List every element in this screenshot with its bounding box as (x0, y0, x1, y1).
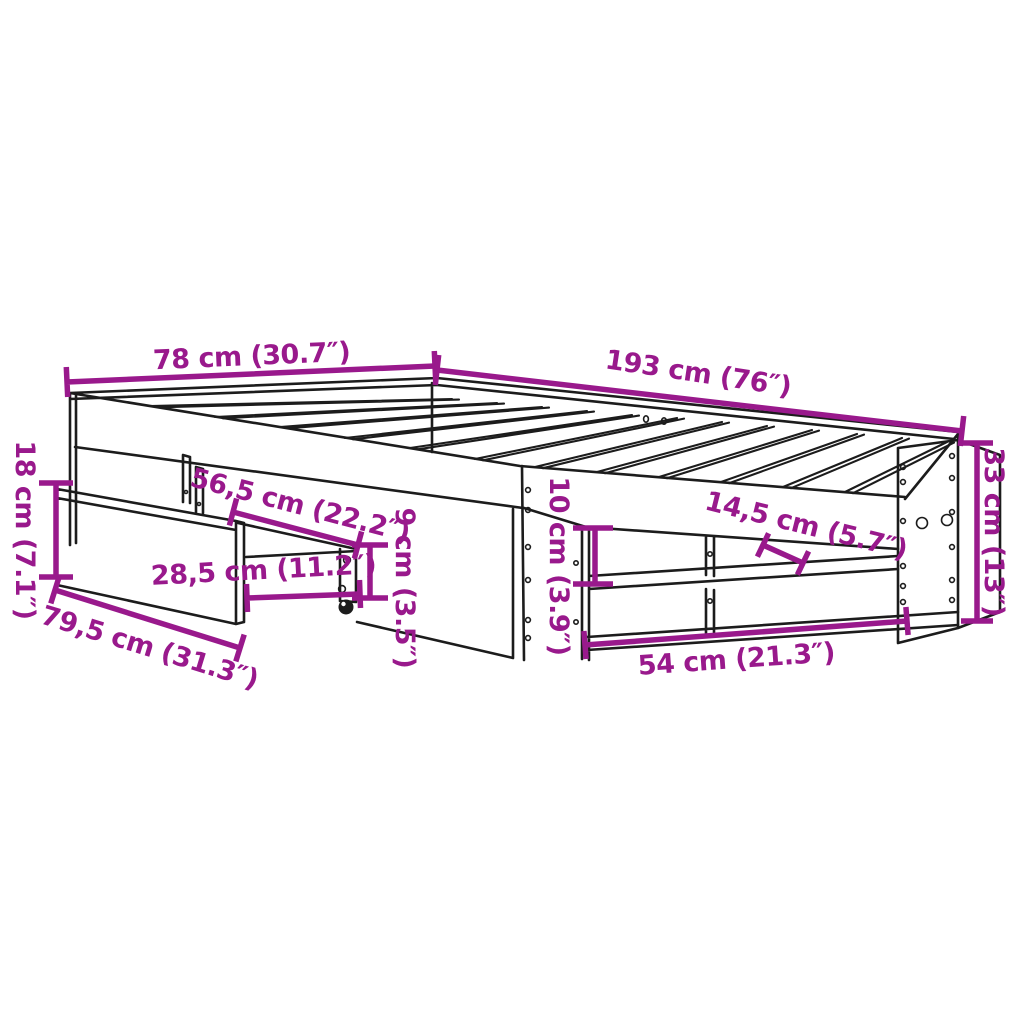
dimension-line (39, 483, 73, 577)
dimension-shelf-opening-height: 10 cm (3.9″) (543, 476, 613, 655)
diagram-stage: 78 cm (30.7″) 193 cm (76″) 33 cm (13″) 1… (0, 0, 1024, 1024)
dimension-shelf-depth: 14,5 cm (5.7″) (702, 486, 910, 575)
bed-frame-dimension-diagram: 78 cm (30.7″) 193 cm (76″) 33 cm (13″) 1… (0, 0, 1024, 1024)
dimension-drawer-width: 79,5 cm (31.3″) (37, 577, 262, 696)
dim-label-frame-height: 33 cm (13″) (978, 447, 1009, 616)
dim-label-drawer-height: 9 cm (3.5″) (389, 508, 420, 669)
dim-label-shelf-opening-height: 10 cm (3.9″) (543, 476, 574, 655)
dim-label-underbed-clearance: 18 cm (7.1″) (9, 440, 40, 619)
dim-label-drawer-width: 79,5 cm (31.3″) (37, 600, 262, 696)
dimension-frame-height: 33 cm (13″) (961, 443, 1009, 621)
caster-wheel-icon (339, 600, 354, 615)
